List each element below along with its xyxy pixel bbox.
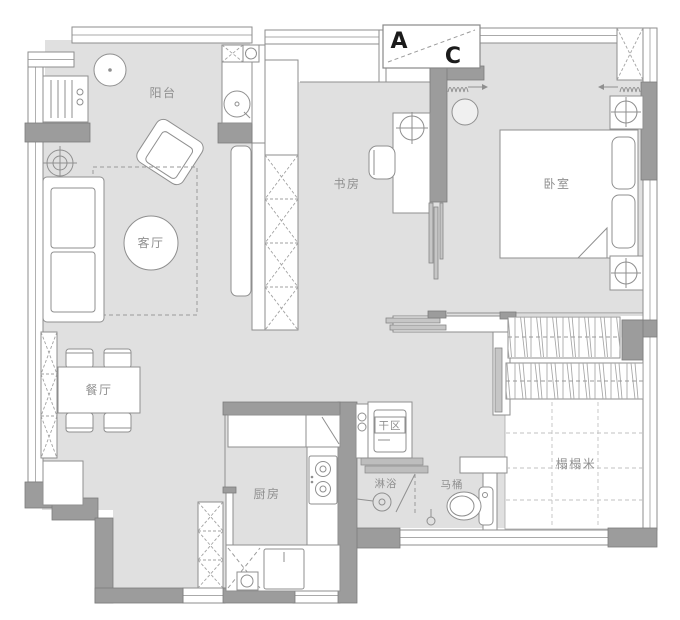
bath-screen-track bbox=[361, 458, 423, 465]
tall-cabinet-column bbox=[265, 60, 298, 155]
label-dry-area: 干区 bbox=[379, 420, 402, 432]
ac-unit-box: A C bbox=[383, 25, 480, 69]
label-dining: 餐厅 bbox=[85, 382, 112, 397]
stool bbox=[452, 99, 478, 125]
marker-a: A bbox=[390, 29, 407, 54]
dining-chair bbox=[104, 349, 131, 368]
sofa-cushion bbox=[51, 252, 95, 312]
marker-c: C bbox=[445, 44, 461, 69]
sliding-door-panel bbox=[434, 207, 438, 279]
dining-chair bbox=[104, 413, 131, 432]
desk-chair bbox=[369, 146, 395, 179]
stove bbox=[309, 456, 337, 504]
tv-cabinet bbox=[231, 146, 251, 296]
shoe-cabinet-hatch bbox=[265, 155, 298, 330]
sliding-door-panel bbox=[440, 203, 443, 259]
sofa-cushion bbox=[51, 188, 95, 248]
toilet-partition-h bbox=[460, 457, 507, 473]
sliding-door-panel bbox=[386, 318, 440, 323]
label-living: 客厅 bbox=[137, 235, 164, 250]
dining-chair bbox=[66, 349, 93, 368]
label-study: 书房 bbox=[333, 176, 360, 191]
balcony-sink bbox=[224, 91, 250, 117]
kitchen-counter-top bbox=[228, 415, 306, 447]
living-right-wall bbox=[252, 143, 265, 330]
floor-plan: A C 阳台 客厅 餐厅 书房 卧室 厨房 干区 淋浴 马桶 榻榻米 bbox=[0, 0, 680, 620]
corner-column-hatch bbox=[617, 28, 643, 80]
sliding-door-panel bbox=[390, 325, 446, 330]
label-toilet: 马桶 bbox=[441, 478, 464, 491]
sliding-door-panel bbox=[495, 348, 502, 412]
sliding-door-panel bbox=[429, 203, 433, 263]
kitchen-cabinet-hatch bbox=[198, 502, 223, 588]
label-balcony: 阳台 bbox=[149, 85, 176, 100]
pillow bbox=[612, 195, 635, 248]
dining-chair bbox=[66, 413, 93, 432]
label-tatami: 榻榻米 bbox=[556, 457, 597, 471]
label-kitchen: 厨房 bbox=[253, 486, 280, 501]
label-bedroom: 卧室 bbox=[543, 176, 570, 191]
pillow bbox=[612, 137, 635, 189]
entry-cabinet bbox=[43, 461, 83, 505]
fridge bbox=[306, 415, 340, 447]
kitchen-sink bbox=[237, 572, 258, 590]
label-shower: 淋浴 bbox=[375, 477, 398, 490]
bath-screen-track bbox=[365, 466, 428, 473]
